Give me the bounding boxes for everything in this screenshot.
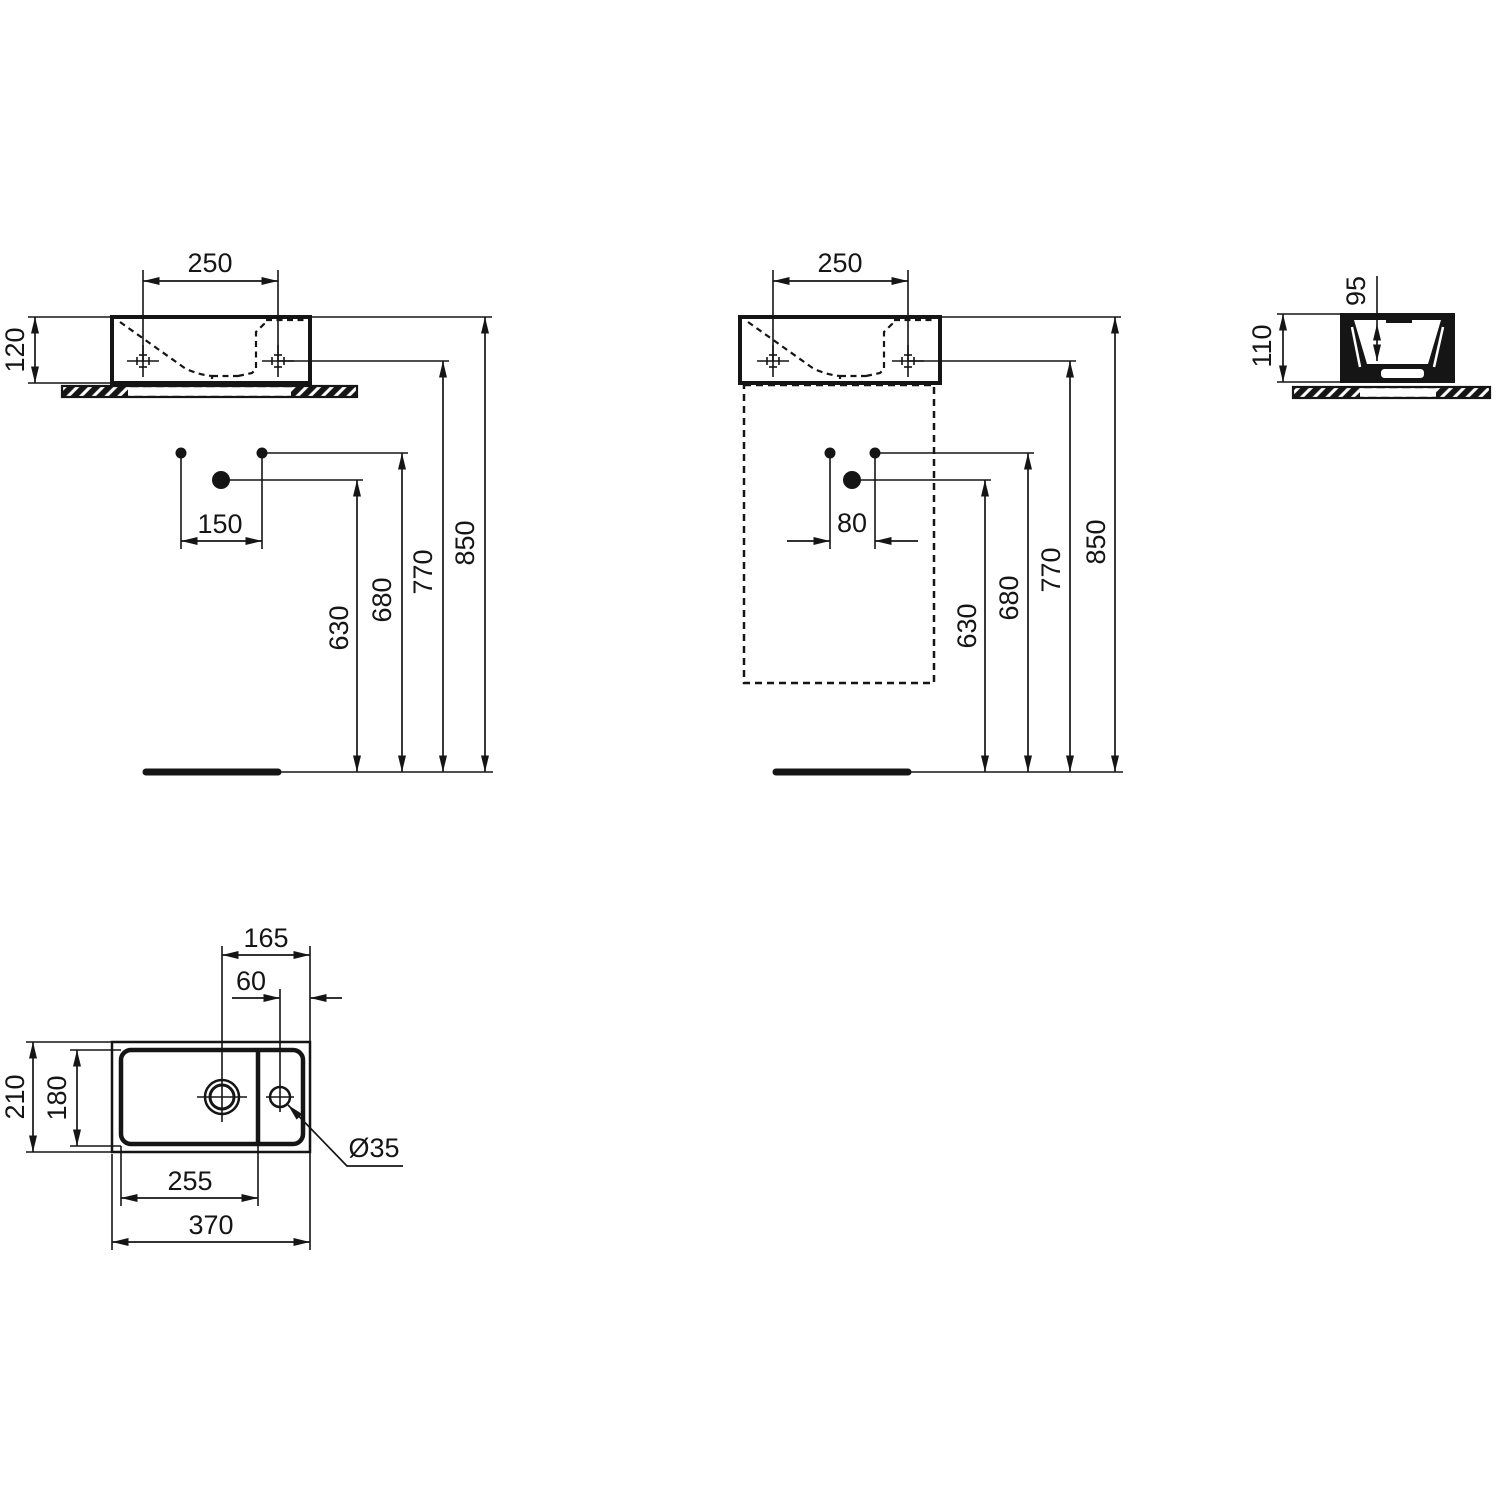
dim-label: 770 <box>1036 547 1066 592</box>
front-view-with-cabinet: 250 80 630 680 770 850 <box>740 248 1123 772</box>
basin-section-body <box>1340 313 1455 383</box>
dim-label: 850 <box>1081 519 1111 564</box>
dim-label: 150 <box>197 509 242 539</box>
overflow-slot <box>1386 316 1412 323</box>
dim-label: 95 <box>1341 276 1371 306</box>
dim-label: 110 <box>1247 324 1277 367</box>
dim-label: 60 <box>236 966 266 996</box>
technical-drawing-page: 250 120 150 630 680 770 <box>0 0 1500 1500</box>
dim-taphole-to-edge: 60 <box>232 966 342 998</box>
wall-shelf-section <box>62 386 357 397</box>
dim-rim-height: 850 <box>450 317 485 772</box>
dim-bowl-depth: 180 <box>42 1050 77 1146</box>
dim-label: 630 <box>952 603 982 648</box>
dim-label: 770 <box>408 549 438 594</box>
dim-label: Ø35 <box>348 1133 399 1163</box>
dim-label: 250 <box>817 248 862 278</box>
dim-label: 210 <box>0 1074 30 1119</box>
dim-label: 370 <box>188 1210 233 1240</box>
dim-bowl-width: 255 <box>121 1166 258 1198</box>
side-section-view: 110 95 <box>1247 276 1490 398</box>
dim-label: 680 <box>994 575 1024 620</box>
dim-drain-height: 630 <box>952 480 985 772</box>
dim-drain-to-edge: 165 <box>222 923 310 955</box>
plan-view: 165 60 210 180 255 370 Ø3 <box>0 923 403 1250</box>
dim-label: 250 <box>187 248 232 278</box>
basin-outline <box>112 317 310 383</box>
front-view-wall-mounted: 250 120 150 630 680 770 <box>0 248 493 772</box>
dim-hole-height: 770 <box>408 361 443 772</box>
dim-label: 180 <box>42 1075 72 1120</box>
dim-trap-height: 680 <box>367 453 402 772</box>
dim-drain-height: 630 <box>324 480 357 772</box>
dim-label: 165 <box>243 923 288 953</box>
dim-label: 255 <box>167 1166 212 1196</box>
dim-basin-height: 120 <box>0 317 112 383</box>
dim-overall-depth: 210 <box>0 1042 33 1152</box>
dim-label: 850 <box>450 520 480 565</box>
dim-hole-height: 770 <box>1036 361 1070 772</box>
dim-label: 80 <box>837 508 867 538</box>
dim-drain-offset: 150 <box>181 509 262 541</box>
wall-shelf-section <box>1293 387 1490 398</box>
dim-overall-width: 370 <box>112 1210 310 1242</box>
dim-rim-height: 850 <box>1081 317 1115 772</box>
dim-label: 630 <box>324 605 354 650</box>
dim-drain-offset: 80 <box>787 508 918 541</box>
dim-trap-height: 680 <box>994 453 1028 772</box>
washbasin-dimension-drawing: 250 120 150 630 680 770 <box>0 0 1500 1500</box>
dim-label: 120 <box>0 327 30 372</box>
basin-outline <box>740 317 940 383</box>
dim-basin-height: 110 <box>1247 314 1283 382</box>
dim-label: 680 <box>367 577 397 622</box>
